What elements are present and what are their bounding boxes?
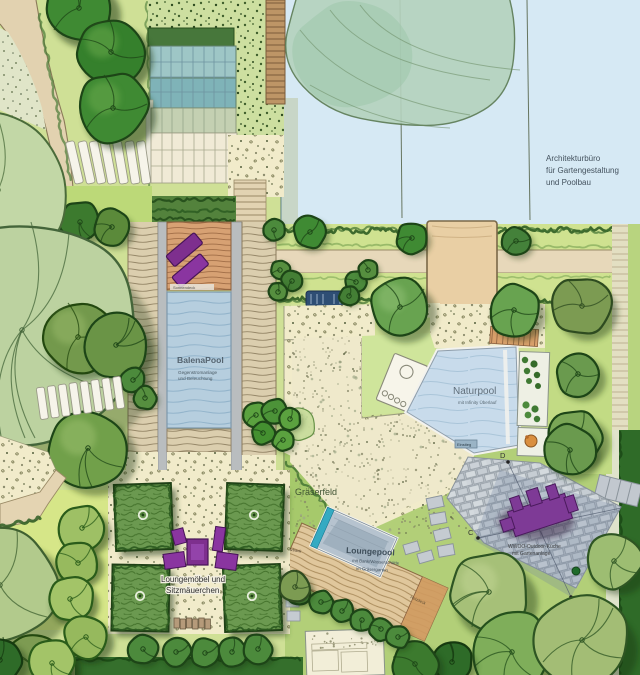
svg-text:Gräserfeld: Gräserfeld <box>295 487 337 497</box>
svg-text:und Poolbau: und Poolbau <box>546 178 591 187</box>
svg-text:C: C <box>468 528 474 537</box>
svg-text:Sitzmäuerchen: Sitzmäuerchen <box>166 586 219 595</box>
svg-text:Architekturbüro: Architekturbüro <box>546 154 601 163</box>
svg-text:Loungemöbel und: Loungemöbel und <box>161 575 225 584</box>
svg-text:mit Infinity Überlauf: mit Infinity Überlauf <box>458 399 497 405</box>
svg-text:Sonnendeck: Sonnendeck <box>173 285 195 290</box>
svg-text:D: D <box>500 451 506 460</box>
svg-text:für Gartengestaltung: für Gartengestaltung <box>546 166 619 175</box>
svg-text:Gegenstromanlage: Gegenstromanlage <box>178 370 218 375</box>
svg-text:mit Gartenanlage: mit Gartenanlage <box>512 551 551 557</box>
svg-text:WWOO-Outdoor-Küche: WWOO-Outdoor-Küche <box>508 544 561 550</box>
svg-text:Einstieg: Einstieg <box>457 442 471 447</box>
svg-text:BalenaPool: BalenaPool <box>177 355 224 365</box>
svg-text:Naturpool: Naturpool <box>453 386 496 397</box>
svg-text:und Beleuchtung: und Beleuchtung <box>178 376 213 381</box>
